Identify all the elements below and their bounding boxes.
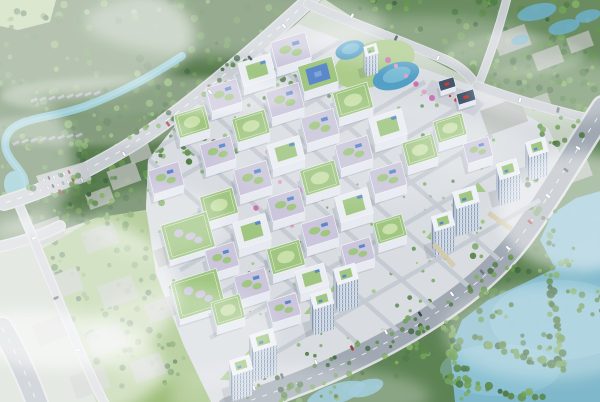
aerial-masterplan-rendering <box>0 0 600 402</box>
scene-root <box>0 0 600 402</box>
mist-layer <box>0 0 600 402</box>
scene-svg <box>0 0 600 402</box>
atmosphere-veil <box>0 0 600 402</box>
